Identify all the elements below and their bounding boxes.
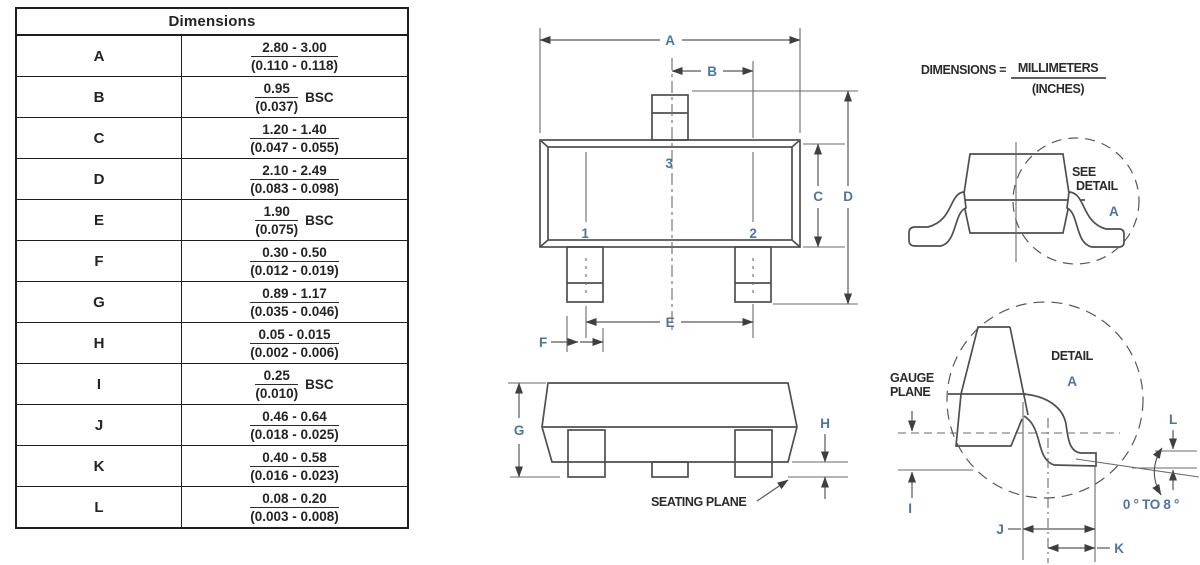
side-lead-right	[735, 430, 772, 477]
dim-j-label: J	[996, 522, 1003, 537]
dimension-letter: J	[17, 405, 182, 445]
dimension-value: 0.08 - 0.20 (0.003 - 0.008)	[182, 487, 407, 527]
pin1-number: 1	[581, 226, 589, 241]
gauge-plane-label-line1: GAUGE	[890, 371, 934, 385]
dimension-letter: A	[17, 36, 182, 76]
dimension-value: 1.90 (0.075) BSC	[182, 200, 407, 240]
see-detail-label-detail: DETAIL	[1076, 179, 1119, 193]
units-note-numerator: MILLIMETERS	[1018, 61, 1098, 75]
dim-c-label: C	[813, 189, 823, 204]
value-inches: (0.047 - 0.055)	[250, 139, 339, 155]
dimension-letter: F	[17, 241, 182, 281]
pin3-lead	[652, 95, 688, 140]
value-inches: (0.083 - 0.098)	[250, 180, 339, 196]
package-mechanical-drawing: DIMENSIONS = MILLIMETERS (INCHES)	[420, 0, 1200, 565]
dimension-letter: C	[17, 118, 182, 158]
package-top-view: 3 1 2 A B C D	[539, 28, 858, 352]
detail-lead-outline	[1023, 394, 1096, 466]
value-inches: (0.003 - 0.008)	[250, 508, 339, 524]
value-mm: 0.25	[255, 368, 298, 385]
value-bsc-suffix: BSC	[305, 213, 334, 228]
value-inches: (0.010)	[255, 385, 298, 401]
value-mm: 0.08 - 0.20	[250, 491, 339, 508]
dimension-value: 0.05 - 0.015 (0.002 - 0.006)	[182, 323, 407, 363]
value-fraction: 1.20 - 1.40 (0.047 - 0.055)	[250, 122, 339, 155]
detail-a-view: GAUGE PLANE I L 0 ° TO 8 ° J K	[890, 302, 1199, 563]
table-row: G 0.89 - 1.17 (0.035 - 0.046)	[17, 282, 407, 323]
value-mm: 1.90	[255, 204, 298, 221]
value-inches: (0.035 - 0.046)	[250, 303, 339, 319]
value-fraction: 1.90 (0.075)	[255, 204, 298, 237]
dimension-value: 0.89 - 1.17 (0.035 - 0.046)	[182, 282, 407, 322]
dim-i-label: I	[908, 501, 911, 516]
dimension-value: 0.25 (0.010) BSC	[182, 364, 407, 404]
dim-a-label: A	[665, 33, 675, 48]
units-note-denominator: (INCHES)	[1032, 82, 1085, 96]
table-row: J 0.46 - 0.64 (0.018 - 0.025)	[17, 405, 407, 446]
value-inches: (0.018 - 0.025)	[250, 426, 339, 442]
value-inches: (0.002 - 0.006)	[250, 344, 339, 360]
dimension-letter: K	[17, 446, 182, 486]
value-fraction: 2.80 - 3.00 (0.110 - 0.118)	[251, 40, 338, 73]
table-row: E 1.90 (0.075) BSC	[17, 200, 407, 241]
detail-body-outline	[956, 327, 1022, 446]
units-note: DIMENSIONS = MILLIMETERS (INCHES)	[921, 61, 1106, 96]
dimension-value: 0.95 (0.037) BSC	[182, 77, 407, 117]
dimensions-table: Dimensions A 2.80 - 3.00 (0.110 - 0.118)…	[15, 7, 409, 529]
dim-f-label: F	[539, 335, 547, 350]
see-detail-label-see: SEE	[1072, 165, 1096, 179]
value-inches: (0.110 - 0.118)	[251, 57, 338, 73]
end-lead-right	[1067, 192, 1124, 247]
dimension-letter: E	[17, 200, 182, 240]
datasheet-package-drawing-page: Dimensions A 2.80 - 3.00 (0.110 - 0.118)…	[0, 0, 1200, 565]
table-row: L 0.08 - 0.20 (0.003 - 0.008)	[17, 487, 407, 527]
dimension-letter: L	[17, 487, 182, 527]
value-mm: 1.20 - 1.40	[250, 122, 339, 139]
dim-d-label: D	[843, 189, 853, 204]
value-bsc-suffix: BSC	[305, 377, 334, 392]
detail-body-right-edge	[1010, 327, 1028, 415]
package-side-view: G H SEATING PLANE	[508, 383, 848, 509]
value-bsc-suffix: BSC	[305, 90, 334, 105]
dim-b-label: B	[707, 64, 717, 79]
value-mm: 0.40 - 0.58	[250, 450, 339, 467]
table-row: H 0.05 - 0.015 (0.002 - 0.006)	[17, 323, 407, 364]
dim-h-label: H	[820, 416, 829, 431]
detail-a-title: DETAIL	[1051, 349, 1094, 363]
dim-e-label: E	[666, 315, 675, 330]
value-mm: 0.46 - 0.64	[250, 409, 339, 426]
dimension-letter: H	[17, 323, 182, 363]
value-fraction: 0.05 - 0.015 (0.002 - 0.006)	[250, 327, 339, 360]
table-body: A 2.80 - 3.00 (0.110 - 0.118) B 0.95 (0.…	[17, 36, 407, 527]
value-inches: (0.016 - 0.023)	[250, 467, 339, 483]
dimension-value: 0.30 - 0.50 (0.012 - 0.019)	[182, 241, 407, 281]
pin1-lead	[567, 247, 603, 302]
seating-plane-label: SEATING PLANE	[651, 495, 746, 509]
table-row: B 0.95 (0.037) BSC	[17, 77, 407, 118]
value-inches: (0.037)	[255, 98, 298, 114]
dim-k-label: K	[1114, 541, 1124, 556]
value-fraction: 0.08 - 0.20 (0.003 - 0.008)	[250, 491, 339, 524]
side-body-outline	[542, 383, 797, 462]
dimension-letter: D	[17, 159, 182, 199]
value-mm: 2.80 - 3.00	[251, 40, 338, 57]
package-end-view: SEE DETAIL A	[909, 138, 1139, 264]
value-mm: 2.10 - 2.49	[250, 163, 339, 180]
dimension-value: 1.20 - 1.40 (0.047 - 0.055)	[182, 118, 407, 158]
table-row: D 2.10 - 2.49 (0.083 - 0.098)	[17, 159, 407, 200]
dimension-value: 2.80 - 3.00 (0.110 - 0.118)	[182, 36, 407, 76]
table-title: Dimensions	[17, 9, 407, 36]
dimension-value: 0.46 - 0.64 (0.018 - 0.025)	[182, 405, 407, 445]
value-mm: 0.30 - 0.50	[250, 245, 339, 262]
value-inches: (0.075)	[255, 221, 298, 237]
pin3-number: 3	[665, 156, 673, 171]
value-fraction: 0.89 - 1.17 (0.035 - 0.046)	[250, 286, 339, 319]
angle-label: 0 ° TO 8 °	[1123, 497, 1179, 512]
units-note-prefix: DIMENSIONS =	[921, 63, 1006, 77]
value-inches: (0.012 - 0.019)	[250, 262, 339, 278]
table-row: K 0.40 - 0.58 (0.016 - 0.023)	[17, 446, 407, 487]
table-row: F 0.30 - 0.50 (0.012 - 0.019)	[17, 241, 407, 282]
dimension-letter: B	[17, 77, 182, 117]
gauge-plane-label-line2: PLANE	[890, 385, 930, 399]
table-row: C 1.20 - 1.40 (0.047 - 0.055)	[17, 118, 407, 159]
value-mm: 0.95	[255, 81, 298, 98]
dim-l-label: L	[1169, 412, 1177, 427]
value-fraction: 0.30 - 0.50 (0.012 - 0.019)	[250, 245, 339, 278]
dimension-letter: G	[17, 282, 182, 322]
value-fraction: 0.95 (0.037)	[255, 81, 298, 114]
value-mm: 0.05 - 0.015	[250, 327, 339, 344]
table-row: I 0.25 (0.010) BSC	[17, 364, 407, 405]
value-fraction: 0.46 - 0.64 (0.018 - 0.025)	[250, 409, 339, 442]
value-mm: 0.89 - 1.17	[250, 286, 339, 303]
dim-g-label: G	[514, 423, 524, 438]
seating-plane-leader	[757, 480, 788, 501]
table-row: A 2.80 - 3.00 (0.110 - 0.118)	[17, 36, 407, 77]
detail-a-title-letter: A	[1067, 374, 1077, 389]
dimension-value: 2.10 - 2.49 (0.083 - 0.098)	[182, 159, 407, 199]
pin2-number: 2	[749, 226, 756, 241]
dimension-value: 0.40 - 0.58 (0.016 - 0.023)	[182, 446, 407, 486]
side-lead-center	[652, 462, 688, 477]
see-detail-label-a: A	[1109, 204, 1119, 219]
side-lead-left	[568, 430, 605, 477]
dimension-letter: I	[17, 364, 182, 404]
value-fraction: 0.40 - 0.58 (0.016 - 0.023)	[250, 450, 339, 483]
value-fraction: 0.25 (0.010)	[255, 368, 298, 401]
value-fraction: 2.10 - 2.49 (0.083 - 0.098)	[250, 163, 339, 196]
end-lead-left	[909, 192, 966, 246]
